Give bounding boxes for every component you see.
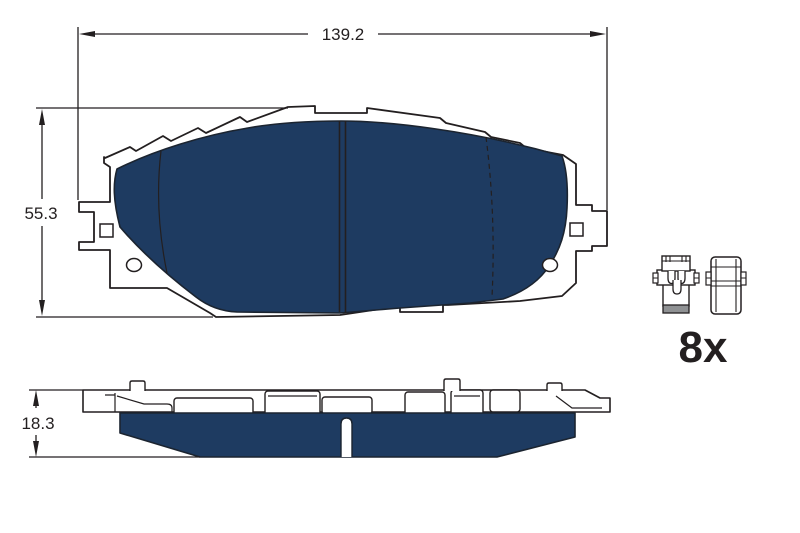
brake-pad-top-view xyxy=(83,379,610,457)
height-dimension-label: 55.3 xyxy=(24,204,57,223)
side-slot xyxy=(341,418,352,457)
arrow-down-icon xyxy=(39,300,45,316)
spring-tab xyxy=(130,381,145,391)
pad-retainer-clip-icon xyxy=(653,256,699,313)
arrow-right-icon xyxy=(590,31,606,37)
thickness-dimension-label: 18.3 xyxy=(21,414,54,433)
right-square-hole xyxy=(570,223,583,236)
arrow-up-icon xyxy=(39,109,45,125)
accessory-kit: 8x xyxy=(653,256,746,372)
friction-material xyxy=(114,121,567,313)
accessory-quantity-label: 8x xyxy=(679,323,728,372)
arrow-up-icon xyxy=(33,390,39,406)
spring-tab xyxy=(444,379,460,391)
shim-segment xyxy=(322,397,372,414)
clip-rubber-band xyxy=(663,305,689,313)
shim-segment xyxy=(490,390,520,412)
shim-clip-icon xyxy=(706,257,746,314)
right-oval-hole xyxy=(543,259,558,272)
left-oval-hole xyxy=(127,259,142,272)
diagram-canvas: 139.2 55.3 18.3 xyxy=(0,0,800,533)
brake-pad-front-view xyxy=(79,106,607,317)
arrow-down-icon xyxy=(33,441,39,457)
spring-tab xyxy=(547,383,562,391)
width-dimension-label: 139.2 xyxy=(322,25,365,44)
arrow-left-icon xyxy=(79,31,95,37)
clip-tongue xyxy=(673,280,681,294)
left-square-hole xyxy=(100,224,113,237)
